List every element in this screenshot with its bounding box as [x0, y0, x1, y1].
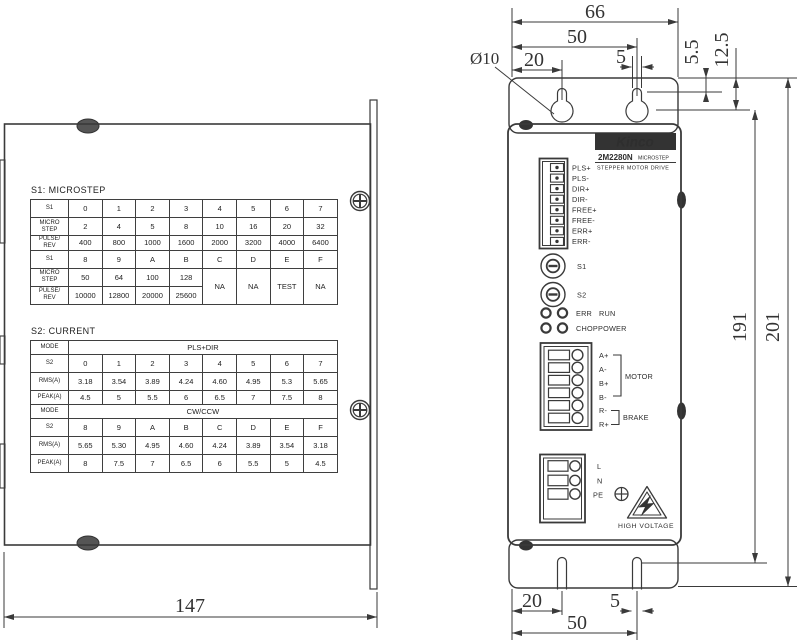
motor-pin-label: B+	[599, 379, 609, 388]
table-cell: 5.5	[236, 455, 270, 473]
table-cell: 4000	[270, 236, 304, 251]
motor-pin-label: A+	[599, 351, 609, 360]
table-cell: 100	[136, 268, 170, 286]
table-cell: 5	[270, 455, 304, 473]
table-cell: 4.60	[203, 373, 237, 391]
brand-logo: Kinco	[616, 135, 654, 150]
table-cell: S2	[31, 355, 69, 373]
table-cell: 3.89	[136, 373, 170, 391]
motor-pin-label: B-	[599, 393, 607, 402]
signal-connector	[540, 159, 568, 249]
dim-text: 12.5	[711, 33, 733, 68]
switch-label: S2	[577, 291, 586, 300]
power-terminals	[548, 461, 580, 500]
table-cell: TEST	[270, 268, 304, 304]
table-cell: F	[304, 250, 338, 268]
table-cell: 4	[102, 218, 136, 236]
table-cell: 1000	[136, 236, 170, 251]
table-cell: 400	[69, 236, 103, 251]
table-cell: 7	[304, 355, 338, 373]
pin-label: PLS-	[572, 174, 589, 183]
pin-label: ERR-	[572, 237, 591, 246]
slot-left	[558, 558, 567, 590]
motor-pin-label: R-	[599, 406, 607, 415]
led-label: ERR	[576, 309, 592, 318]
slot-right	[633, 558, 642, 590]
table-cell: 12800	[102, 286, 136, 304]
table-cell: 0	[69, 355, 103, 373]
corner-bump	[519, 120, 533, 130]
table-row: MODEPLS+DIR	[31, 341, 338, 355]
table-cell: 5.65	[69, 437, 103, 455]
motor-connector	[541, 343, 592, 430]
table-cell: 8	[69, 250, 103, 268]
table-cell: 7	[236, 391, 270, 405]
table-cell: 9	[102, 250, 136, 268]
table-cell: NA	[236, 268, 270, 304]
table-cell: NA	[203, 268, 237, 304]
table-cell: 2000	[203, 236, 237, 251]
technical-drawing-canvas: Kinco 2M2280N MICROSTEP STEPPER MOTOR DR…	[0, 0, 800, 644]
table-cell: C	[203, 250, 237, 268]
table-cell: MICRO STEP	[31, 268, 69, 286]
table-cell: 3	[169, 200, 203, 218]
bottom-bracket	[509, 540, 678, 588]
table-cell: 0	[69, 200, 103, 218]
dim-text: Ø10	[470, 49, 499, 68]
high-voltage-label: HIGH VOLTAGE	[618, 523, 674, 530]
table-cell: MODE	[31, 405, 69, 419]
table-cell: 6	[169, 391, 203, 405]
table-cell: 64	[102, 268, 136, 286]
table-cell: 2	[136, 200, 170, 218]
table-cell: 1	[102, 200, 136, 218]
table-cell: 8	[169, 218, 203, 236]
drawing-svg: Kinco 2M2280N MICROSTEP STEPPER MOTOR DR…	[0, 0, 800, 644]
chop-led	[541, 323, 550, 332]
earth-ground-icon	[615, 488, 628, 501]
table-cell: 5	[236, 355, 270, 373]
motor-terminals	[549, 350, 583, 424]
table-row: PEAK(A)87.576.565.554.5	[31, 455, 338, 473]
table-cell: 6.5	[169, 455, 203, 473]
dim-text: 20	[522, 590, 542, 612]
table-cell: 3.54	[270, 437, 304, 455]
table-cell: 5	[236, 200, 270, 218]
table-cell: 7	[136, 455, 170, 473]
subtitle-label: STEPPER MOTOR DRIVE	[597, 166, 669, 172]
power-led	[558, 323, 567, 332]
table-cell: A	[136, 419, 170, 437]
dim-text: 5.5	[681, 40, 703, 65]
signal-terminals	[551, 164, 564, 246]
table-cell: 6	[203, 455, 237, 473]
table-cell: B	[169, 419, 203, 437]
table-cell: 4.5	[304, 455, 338, 473]
dim-5-bottom: 5	[610, 590, 654, 612]
dim-12-5: 12.5	[656, 33, 750, 111]
dim-text: 201	[762, 312, 784, 342]
table-row: MODECW/CCW	[31, 405, 338, 419]
table-cell: 3.18	[69, 373, 103, 391]
table-cell: 1	[102, 355, 136, 373]
high-voltage-icon	[628, 487, 667, 519]
dim-text: 50	[567, 612, 587, 634]
table-cell: 20	[270, 218, 304, 236]
table-row: MICRO STEP5064100128NANATESTNA	[31, 268, 338, 286]
table-cell: 25600	[169, 286, 203, 304]
table-cell: 5	[136, 218, 170, 236]
table-cell: 5.3	[270, 373, 304, 391]
top-bump	[77, 119, 99, 133]
table-cell: 3.18	[304, 437, 338, 455]
table-cell: S1	[31, 200, 69, 218]
table-cell: 20000	[136, 286, 170, 304]
table-row: S101234567	[31, 200, 338, 218]
table-cell: 6	[270, 200, 304, 218]
brake-group-label: BRAKE	[623, 413, 649, 422]
pin-label: DIR+	[572, 184, 590, 193]
table-cell: 4.95	[136, 437, 170, 455]
table-cell: A	[136, 250, 170, 268]
table-cell: PULSE/ REV	[31, 286, 69, 304]
table-cell: 1600	[169, 236, 203, 251]
power-pin-label: PE	[593, 491, 603, 500]
pin-label: ERR+	[572, 227, 592, 236]
pin-label: FREE-	[572, 216, 595, 225]
dim-text: 147	[175, 595, 205, 617]
table-cell: 800	[102, 236, 136, 251]
table-cell: S1	[31, 250, 69, 268]
dim-20-bottom: 20	[512, 590, 562, 612]
rotary-switch-s1	[541, 254, 565, 278]
current-table-title: S2: CURRENT	[31, 326, 95, 336]
dim-191: 191	[729, 110, 755, 563]
table-cell: E	[270, 419, 304, 437]
table-cell: 4	[203, 200, 237, 218]
table-cell: 6	[270, 355, 304, 373]
table-cell: B	[169, 250, 203, 268]
table-cell: 4.5	[69, 391, 103, 405]
dim-5-top: 5	[616, 46, 654, 68]
led-label: POWER	[598, 324, 627, 333]
table-row: S189ABCDEF	[31, 250, 338, 268]
table-row: PULSE/ REV400800100016002000320040006400	[31, 236, 338, 251]
table-row: S289ABCDEF	[31, 419, 338, 437]
table-cell: MICRO STEP	[31, 218, 69, 236]
table-cell: 5.30	[102, 437, 136, 455]
table-cell: 10	[203, 218, 237, 236]
table-cell: 5.65	[304, 373, 338, 391]
table-cell: 7	[304, 200, 338, 218]
table-cell: 3	[169, 355, 203, 373]
dim-147: 147	[4, 595, 377, 617]
err-led	[541, 308, 550, 317]
table-cell: PLS+DIR	[69, 341, 338, 355]
table-cell: MODE	[31, 341, 69, 355]
table-cell: 5.5	[136, 391, 170, 405]
pin-label: PLS+	[572, 163, 591, 172]
screw-icon	[351, 401, 370, 420]
model-tag: MICROSTEP	[638, 156, 669, 162]
table-cell: 7.5	[102, 455, 136, 473]
table-cell: 3.89	[236, 437, 270, 455]
table-cell: 4.24	[203, 437, 237, 455]
table-cell: 128	[169, 268, 203, 286]
dim-50-bottom: 50	[512, 612, 637, 634]
led-label: CHOP	[576, 324, 598, 333]
table-cell: 4.95	[236, 373, 270, 391]
dim-20-top: 20	[512, 49, 562, 71]
table-cell: 8	[69, 455, 103, 473]
switch-label: S1	[577, 262, 586, 271]
table-cell: RMS(A)	[31, 437, 69, 455]
brake-group-bracket	[611, 411, 619, 425]
table-cell: NA	[304, 268, 338, 304]
table-cell: S2	[31, 419, 69, 437]
run-led	[558, 308, 567, 317]
table-cell: PULSE/ REV	[31, 236, 69, 251]
dim-text: 66	[585, 1, 605, 23]
led-label: RUN	[599, 309, 615, 318]
table-cell: 10000	[69, 286, 103, 304]
dim-text: 5	[616, 46, 626, 68]
power-connector	[540, 455, 585, 523]
motor-group-bracket	[613, 355, 621, 396]
pin-label: FREE+	[572, 206, 597, 215]
table-cell: 4.60	[169, 437, 203, 455]
table-cell: 5	[102, 391, 136, 405]
table-cell: D	[236, 250, 270, 268]
table-cell: C	[203, 419, 237, 437]
table-cell: 6.5	[203, 391, 237, 405]
dim-66: 66	[512, 1, 678, 23]
pin-label: DIR-	[572, 195, 588, 204]
status-leds	[541, 308, 567, 332]
table-cell: 2	[136, 355, 170, 373]
table-cell: 2	[69, 218, 103, 236]
table-row: MICRO STEP245810162032	[31, 218, 338, 236]
table-row: RMS(A)5.655.304.954.604.243.893.543.18	[31, 437, 338, 455]
table-cell: 16	[236, 218, 270, 236]
table-cell: 8	[69, 419, 103, 437]
motor-group-label: MOTOR	[625, 372, 653, 381]
dim-text: 5	[610, 590, 620, 612]
table-cell: D	[236, 419, 270, 437]
front-body	[508, 124, 681, 545]
table-row: PEAK(A)4.555.566.577.58	[31, 391, 338, 405]
rotary-switch-s2	[541, 283, 565, 307]
table-cell: CW/CCW	[69, 405, 338, 419]
motor-pin-label: R+	[599, 420, 609, 429]
microstep-table: S101234567MICRO STEP245810162032PULSE/ R…	[30, 199, 338, 305]
dim-text: 20	[524, 49, 544, 71]
table-cell: 8	[304, 391, 338, 405]
table-cell: 4.24	[169, 373, 203, 391]
dim-50-top: 50	[512, 26, 637, 48]
table-cell: 3.54	[102, 373, 136, 391]
dim-text: 50	[567, 26, 587, 48]
table-cell: 7.5	[270, 391, 304, 405]
table-row: RMS(A)3.183.543.894.244.604.955.35.65	[31, 373, 338, 391]
current-table: MODEPLS+DIRS201234567RMS(A)3.183.543.894…	[30, 340, 338, 473]
table-cell: 4	[203, 355, 237, 373]
table-row: S201234567	[31, 355, 338, 373]
table-cell: RMS(A)	[31, 373, 69, 391]
table-cell: PEAK(A)	[31, 391, 69, 405]
table-cell: 50	[69, 268, 103, 286]
front-view: Kinco 2M2280N MICROSTEP STEPPER MOTOR DR…	[508, 78, 686, 590]
bottom-bump	[77, 536, 99, 550]
model-label: 2M2280N	[598, 153, 633, 162]
table-cell: F	[304, 419, 338, 437]
power-pin-label: L	[597, 462, 601, 471]
dim-text: 191	[729, 312, 751, 342]
table-cell: 6400	[304, 236, 338, 251]
dim-201: 201	[762, 78, 788, 587]
table-cell: 3200	[236, 236, 270, 251]
table-cell: 9	[102, 419, 136, 437]
microstep-table-title: S1: MICROSTEP	[31, 185, 106, 195]
screw-icon	[351, 192, 370, 211]
table-cell: 32	[304, 218, 338, 236]
table-cell: E	[270, 250, 304, 268]
power-pin-label: N	[597, 477, 602, 486]
motor-pin-label: A-	[599, 365, 607, 374]
table-cell: PEAK(A)	[31, 455, 69, 473]
